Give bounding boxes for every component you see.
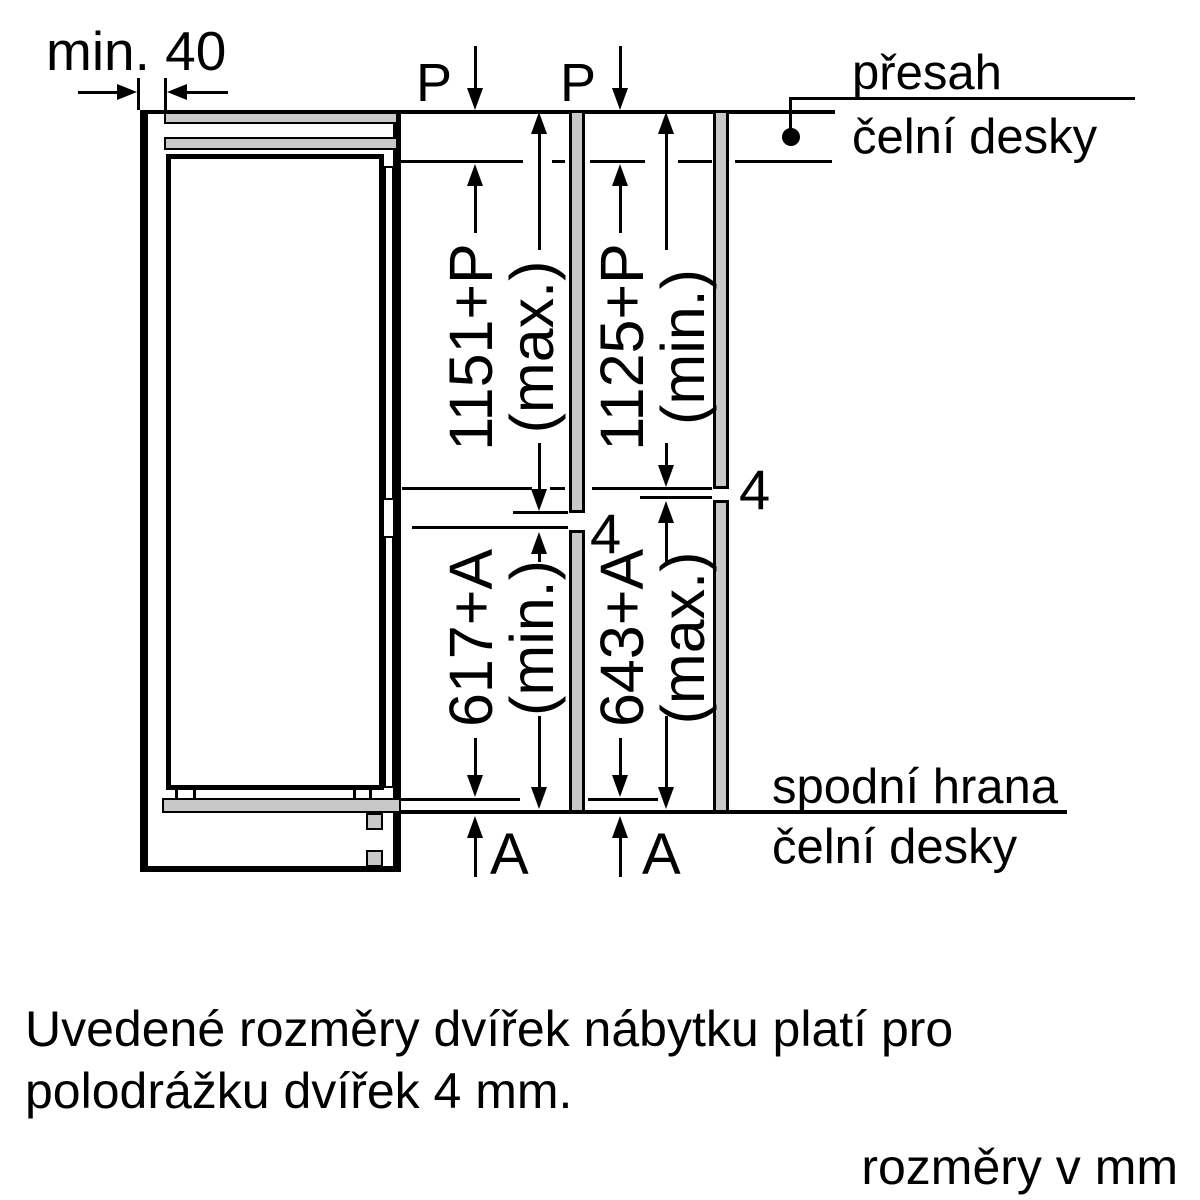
overhang-annotation-line2: čelní desky <box>852 108 1097 168</box>
p-arrow-shaft <box>619 46 622 90</box>
p-label: P <box>416 56 452 110</box>
down-arrow-icon <box>467 88 483 110</box>
cabinet-right-wall <box>393 110 401 872</box>
down-arrow-icon <box>612 88 628 110</box>
cabinet-top-strip-lower <box>164 137 398 150</box>
cabinet-top-strip-upper <box>164 112 398 124</box>
front-panel-left-upper <box>569 110 585 513</box>
dim-arrow-shaft <box>78 91 120 94</box>
overhang-annotation-line1: přesah <box>852 44 1002 104</box>
dimension-value: 643+A <box>592 438 653 838</box>
a-arrow-shaft <box>619 834 622 877</box>
bottom-edge-annotation-line1: spodní hrana <box>772 758 1058 818</box>
a-arrow-shaft <box>474 834 477 877</box>
appliance-door-seal-upper <box>384 166 394 500</box>
bottom-edge-annotation-line2: čelní desky <box>772 818 1017 878</box>
units-note: rozměry v mm <box>826 1136 1178 1198</box>
dimension-value: 617+A <box>441 438 502 838</box>
dim-tick <box>137 78 140 110</box>
p-arrow-shaft <box>474 46 477 90</box>
left-arrow-icon <box>167 84 187 100</box>
note-line1: Uvedené rozměry dvířek nábytku platí pro <box>25 998 953 1060</box>
appliance-body <box>166 154 384 790</box>
min-clearance-label: min. 40 <box>46 24 226 79</box>
mount-block-lower <box>366 850 383 867</box>
installation-diagram: min. 40 <box>0 0 1200 1200</box>
gap-4-label: 4 <box>739 462 770 518</box>
front-panel-left-lower <box>569 530 585 813</box>
p-label: P <box>560 56 596 110</box>
leader-drop <box>789 97 792 131</box>
dimension-qualifier: (max.) <box>653 438 714 838</box>
dimension-lower-left: 617+A (min.) <box>440 438 564 838</box>
dimension-qualifier: (min.) <box>502 438 563 838</box>
dimension-lower-right: 643+A (max.) <box>591 438 715 838</box>
mount-block-upper <box>366 813 383 830</box>
dim-arrow-shaft <box>186 91 228 94</box>
appliance-door-seal-lower <box>384 536 394 788</box>
leader-dot-icon <box>782 128 800 146</box>
cabinet-left-wall <box>140 110 148 872</box>
cabinet-bottom-wall <box>140 866 401 872</box>
note-line2: polodrážku dvířek 4 mm. <box>25 1060 572 1122</box>
niche-top-line <box>735 160 832 163</box>
plinth-strip <box>162 798 401 813</box>
right-arrow-icon <box>117 84 137 100</box>
